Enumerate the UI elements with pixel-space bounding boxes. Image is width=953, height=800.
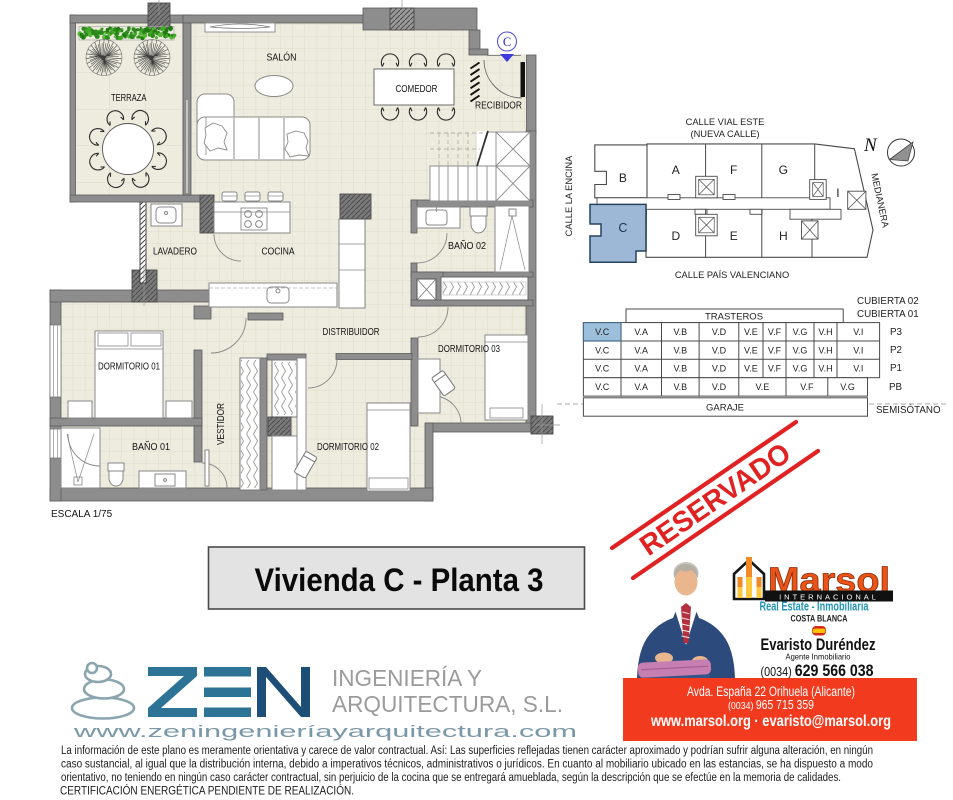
svg-text:P3: P3 xyxy=(890,327,903,338)
svg-text:V.H: V.H xyxy=(818,364,832,374)
svg-text:V.I: V.I xyxy=(853,364,863,374)
svg-text:H: H xyxy=(779,229,788,243)
svg-text:V.I: V.I xyxy=(853,345,863,355)
svg-text:V.E: V.E xyxy=(744,327,758,337)
svg-text:V.F: V.F xyxy=(800,382,814,392)
svg-text:CALLE VIAL ESTE: CALLE VIAL ESTE xyxy=(686,117,765,127)
svg-text:V.A: V.A xyxy=(634,382,648,392)
svg-text:RESERVADO: RESERVADO xyxy=(634,437,796,562)
svg-text:V.F: V.F xyxy=(768,364,782,374)
svg-text:G: G xyxy=(779,163,788,177)
svg-text:COSTA BLANCA: COSTA BLANCA xyxy=(791,614,848,625)
svg-text:TRASTEROS: TRASTEROS xyxy=(705,312,763,323)
svg-text:COCINA: COCINA xyxy=(262,247,295,258)
svg-text:SEMISÓTANO: SEMISÓTANO xyxy=(876,405,941,416)
svg-text:DORMITORIO 03: DORMITORIO 03 xyxy=(438,344,500,355)
svg-text:E: E xyxy=(730,229,738,243)
svg-text:V.D: V.D xyxy=(712,382,727,392)
svg-text:www.marsol.org · evaristo@mars: www.marsol.org · evaristo@marsol.org xyxy=(650,713,891,730)
svg-text:V.A: V.A xyxy=(634,345,648,355)
svg-text:N: N xyxy=(863,135,878,156)
svg-text:SALÓN: SALÓN xyxy=(267,53,297,64)
svg-text:V.C: V.C xyxy=(595,327,610,337)
svg-text:DORMITORIO 01: DORMITORIO 01 xyxy=(98,362,160,373)
svg-text:I: I xyxy=(836,186,839,200)
svg-text:V.B: V.B xyxy=(673,345,687,355)
svg-text:GARAJE: GARAJE xyxy=(706,403,744,414)
svg-text:F: F xyxy=(730,163,737,177)
svg-text:TERRAZA: TERRAZA xyxy=(111,93,147,104)
svg-text:V.C: V.C xyxy=(595,382,610,392)
svg-text:V.B: V.B xyxy=(673,327,687,337)
svg-text:B: B xyxy=(619,171,627,185)
svg-text:Avda. España 22 Orihuela (Alic: Avda. España 22 Orihuela (Alicante) xyxy=(687,684,855,699)
svg-text:V.E: V.E xyxy=(744,364,758,374)
svg-text:DORMITORIO 02: DORMITORIO 02 xyxy=(317,442,379,453)
svg-text:V.D: V.D xyxy=(712,327,727,337)
svg-text:V.C: V.C xyxy=(595,364,610,374)
svg-text:V.A: V.A xyxy=(634,364,648,374)
svg-text:A: A xyxy=(672,163,680,177)
svg-text:P2: P2 xyxy=(890,345,902,356)
svg-text:www.zeningenieríayarquitectura: www.zeningenieríayarquitectura.com xyxy=(72,722,577,741)
svg-text:C: C xyxy=(503,35,511,49)
svg-text:V.F: V.F xyxy=(768,345,782,355)
svg-text:caso sustancial, al igual que: caso sustancial, al igual que la distrib… xyxy=(61,759,873,771)
svg-text:ARQUITECTURA, S.L.: ARQUITECTURA, S.L. xyxy=(332,691,563,717)
svg-text:orientativo, no teniendo en ni: orientativo, no teniendo en ningún caso … xyxy=(61,772,841,784)
svg-text:Vivienda C - Planta 3: Vivienda C - Planta 3 xyxy=(255,562,544,598)
svg-text:BAÑO 01: BAÑO 01 xyxy=(132,442,170,453)
svg-text:V.E: V.E xyxy=(756,382,770,392)
svg-text:V.D: V.D xyxy=(712,364,727,374)
svg-text:INGENIERÍA Y: INGENIERÍA Y xyxy=(332,665,482,691)
svg-text:V.G: V.G xyxy=(840,382,855,392)
svg-text:V.F: V.F xyxy=(768,327,782,337)
svg-text:CERTIFICACIÓN ENERGÉTICA PENDI: CERTIFICACIÓN ENERGÉTICA PENDIENTE DE RE… xyxy=(60,783,354,798)
svg-text:CALLE PAÍS VALENCIANO: CALLE PAÍS VALENCIANO xyxy=(675,270,789,280)
svg-text:V.G: V.G xyxy=(793,364,808,374)
svg-text:C: C xyxy=(618,221,627,235)
svg-text:VESTIDOR: VESTIDOR xyxy=(216,403,227,445)
svg-text:V.C: V.C xyxy=(595,345,610,355)
svg-text:ESCALA 1/75: ESCALA 1/75 xyxy=(51,509,113,520)
svg-text:(0034) 629 566 038: (0034) 629 566 038 xyxy=(761,661,874,680)
svg-text:V.A: V.A xyxy=(634,327,648,337)
svg-text:V.D: V.D xyxy=(712,345,727,355)
svg-text:(NUEVA CALLE): (NUEVA CALLE) xyxy=(690,129,759,139)
svg-text:V.G: V.G xyxy=(793,345,808,355)
svg-text:CUBIERTA 01: CUBIERTA 01 xyxy=(857,309,919,320)
svg-text:Agente Inmobiliario: Agente Inmobiliario xyxy=(786,652,851,662)
svg-text:V.E: V.E xyxy=(744,345,758,355)
svg-text:COMEDOR: COMEDOR xyxy=(396,84,438,95)
svg-text:V.I: V.I xyxy=(853,327,863,337)
svg-text:LAVADERO: LAVADERO xyxy=(153,247,197,258)
svg-text:BAÑO 02: BAÑO 02 xyxy=(448,241,486,252)
svg-text:PB: PB xyxy=(889,382,903,393)
svg-text:CALLE LA ENCINA: CALLE LA ENCINA xyxy=(564,155,574,236)
svg-text:La información de este plano e: La información de este plano es merament… xyxy=(61,745,873,757)
svg-text:(0034) 965 715 359: (0034) 965 715 359 xyxy=(728,698,814,712)
svg-text:V.G: V.G xyxy=(793,327,808,337)
svg-text:DISTRIBUIDOR: DISTRIBUIDOR xyxy=(323,327,380,338)
svg-text:RECIBIDOR: RECIBIDOR xyxy=(475,101,522,112)
svg-text:MEDIANERA: MEDIANERA xyxy=(869,172,890,229)
svg-text:V.H: V.H xyxy=(818,345,832,355)
svg-text:CUBIERTA 02: CUBIERTA 02 xyxy=(857,296,919,307)
svg-text:V.B: V.B xyxy=(673,382,687,392)
svg-text:Real Estate - Inmobiliaria: Real Estate - Inmobiliaria xyxy=(760,600,870,614)
svg-text:V.H: V.H xyxy=(818,327,832,337)
svg-text:D: D xyxy=(671,229,680,243)
svg-text:V.B: V.B xyxy=(673,364,687,374)
svg-text:P1: P1 xyxy=(890,363,902,374)
